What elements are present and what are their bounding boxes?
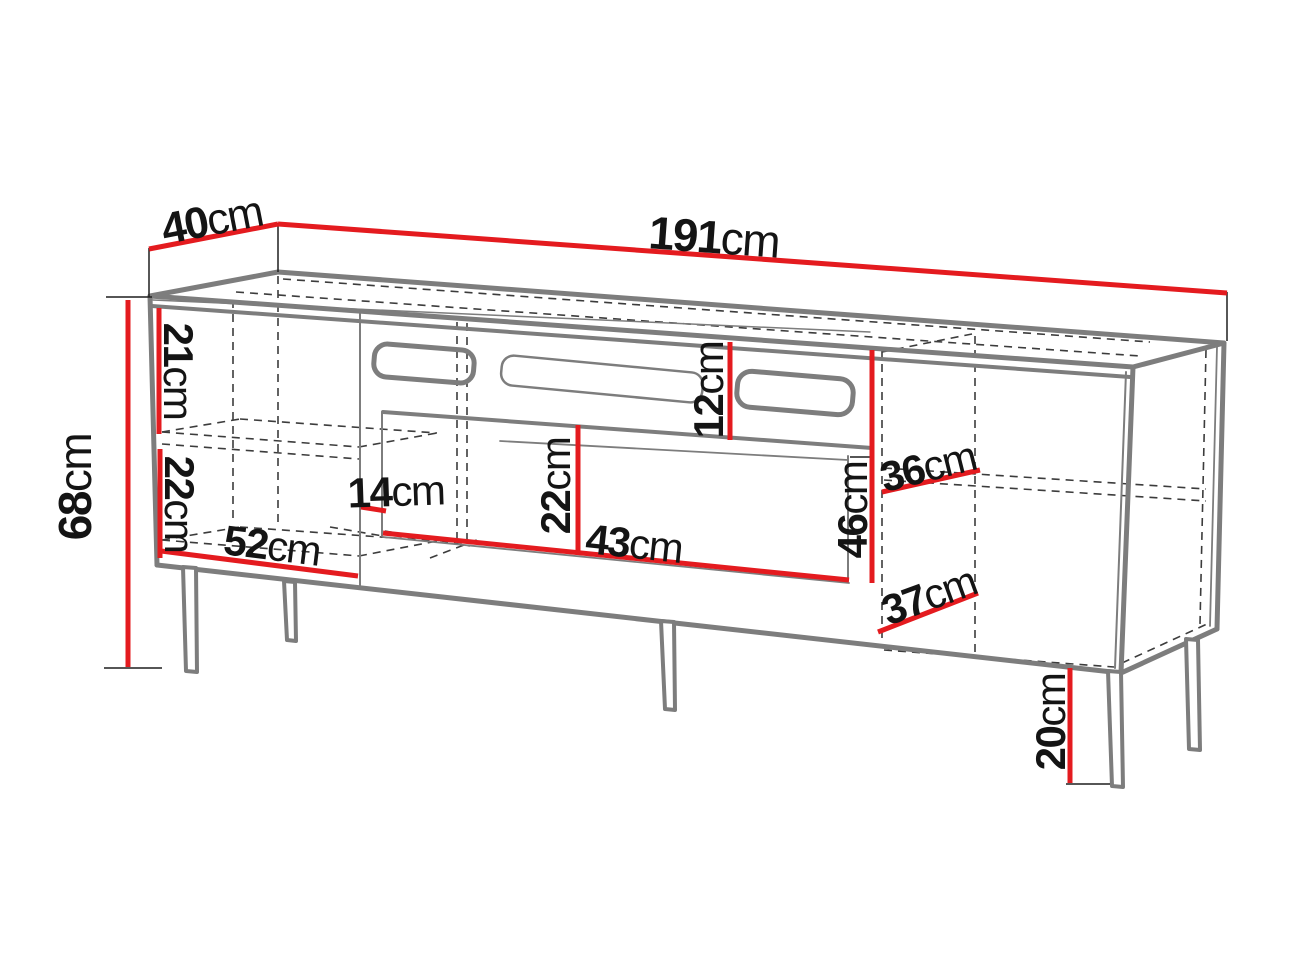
dim-label-leg-height: 20cm <box>1030 674 1072 771</box>
handle-slot-left <box>373 343 475 384</box>
front-right-corner-edge <box>1121 367 1133 673</box>
dim-unit: cm <box>49 434 101 492</box>
front-top-lip <box>152 306 1130 377</box>
dim-unit: cm <box>685 342 732 395</box>
hidden-left-shelf-back <box>240 419 437 433</box>
front-bottom-edge <box>157 565 1121 673</box>
dim-unit: cm <box>1027 674 1074 727</box>
dim-unit: cm <box>627 520 685 572</box>
dim-value: 52 <box>221 516 270 568</box>
dim-label-niche-height: 12cm <box>688 342 730 439</box>
hidden-side-inner-edge <box>1200 350 1206 624</box>
side-back-edge <box>1217 343 1224 629</box>
dim-label-drawer-height: 22cm <box>535 438 577 535</box>
leg-front-right <box>1108 671 1123 787</box>
handle-slot-center <box>500 355 704 404</box>
hidden-top-back-edge <box>283 279 1150 342</box>
leg-front-left <box>183 567 197 672</box>
dim-value: 21 <box>155 323 202 367</box>
top-interior-thin-edge <box>153 300 870 332</box>
dim-value: 22 <box>156 456 203 500</box>
side-bottom-edge <box>1121 629 1217 673</box>
dim-value: 20 <box>1027 727 1074 771</box>
dim-label-left-lower: 22cm <box>158 456 200 553</box>
drawer-top-edge <box>383 412 872 448</box>
dim-value: 68 <box>49 492 101 540</box>
dim-value: 12 <box>685 395 732 439</box>
dim-unit: cm <box>156 499 203 552</box>
dim-unit: cm <box>265 522 323 575</box>
dim-label-left-width: 52cm <box>221 519 322 572</box>
dim-label-left-upper: 21cm <box>157 323 199 420</box>
hidden-left-shelf-depth-b <box>359 433 437 447</box>
dim-unit: cm <box>391 466 446 515</box>
hidden-left-bottom-depth-b <box>359 541 437 556</box>
furniture-dimension-diagram: 68cm 40cm 191cm 21cm 22cm 52cm 14cm 22cm… <box>0 0 1298 974</box>
dim-label-drawer-width: 43cm <box>584 518 685 570</box>
hidden-left-shelf-depth-a <box>162 419 240 432</box>
hidden-left-shelf-front <box>162 432 359 447</box>
dim-label-right-height: 46cm <box>832 462 874 559</box>
dim-value: 22 <box>532 491 579 535</box>
visible-edges <box>150 272 1224 673</box>
dim-label-center-gap: 14cm <box>347 469 445 514</box>
dim-label-total-height: 68cm <box>52 434 98 541</box>
dim-label-total-width: 191cm <box>647 209 781 264</box>
dim-value: 46 <box>829 515 876 559</box>
dim-unit: cm <box>202 187 266 246</box>
dim-value: 191 <box>647 206 723 263</box>
dim-unit: cm <box>829 462 876 515</box>
leg-back-left <box>284 581 296 641</box>
leg-back-right <box>1186 639 1200 750</box>
dim-unit: cm <box>155 366 202 419</box>
leg-front-middle <box>661 621 675 710</box>
handle-slot-right <box>736 370 855 416</box>
dim-value: 43 <box>584 515 632 566</box>
dim-unit: cm <box>532 438 579 491</box>
dim-unit: cm <box>719 212 781 268</box>
dim-value: 14 <box>347 468 392 516</box>
